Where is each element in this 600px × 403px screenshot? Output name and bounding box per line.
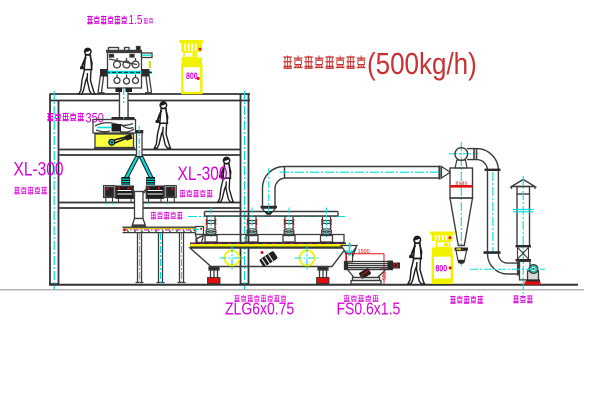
svg-text:XL-300: XL-300 [178, 162, 228, 184]
svg-text:XL-300: XL-300 [14, 158, 64, 180]
svg-text:1.5: 1.5 [129, 14, 143, 27]
svg-text:800: 800 [436, 264, 448, 274]
svg-text:1500: 1500 [358, 249, 370, 255]
svg-text:FS0.6x1.5: FS0.6x1.5 [337, 300, 401, 319]
svg-text:ZLG6x0.75: ZLG6x0.75 [225, 300, 294, 319]
svg-text:800: 800 [186, 71, 198, 81]
svg-text:(500kg/h): (500kg/h) [367, 47, 477, 82]
